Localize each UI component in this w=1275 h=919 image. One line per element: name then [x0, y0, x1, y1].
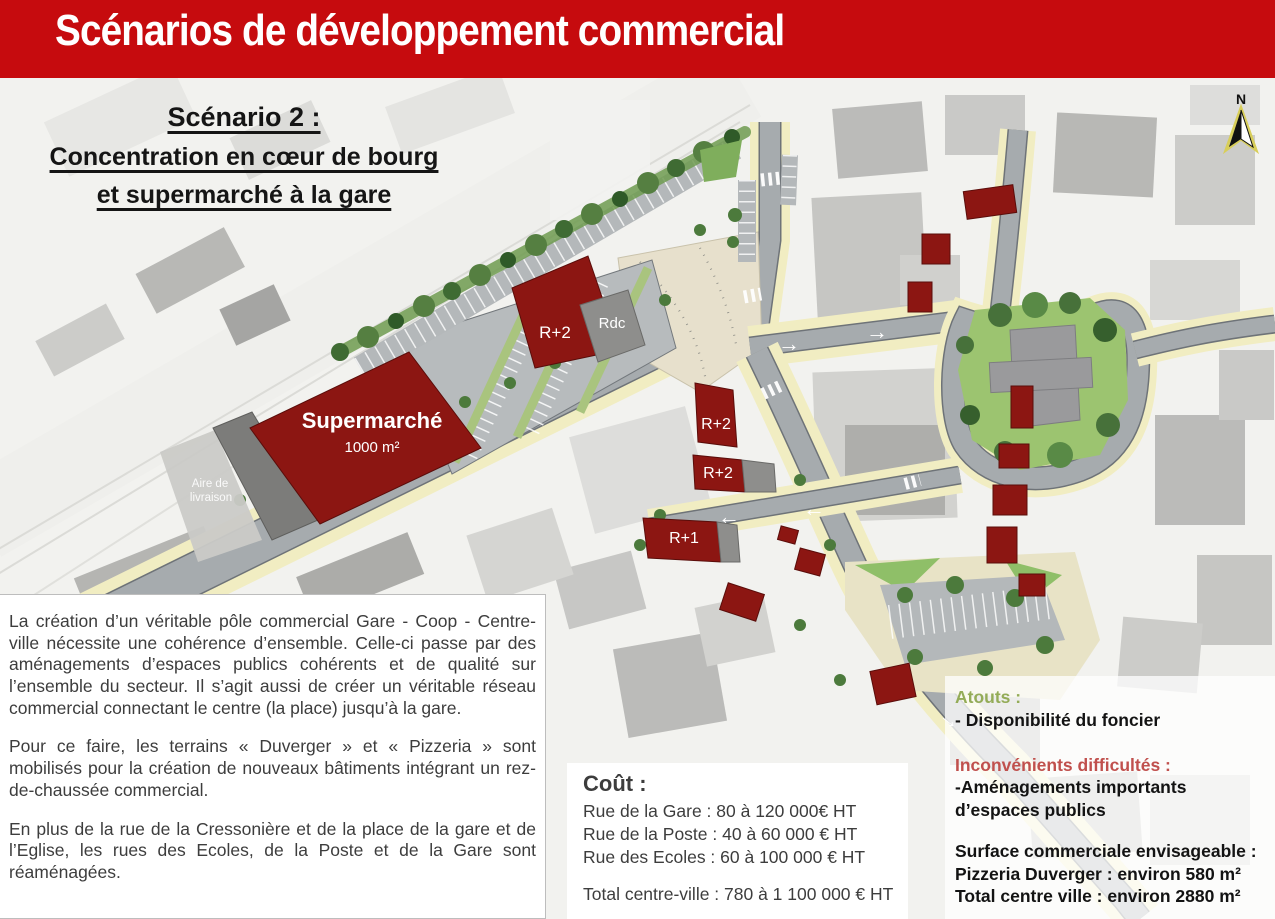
assessment-panel: Atouts : - Disponibilité du foncier Inco… [945, 676, 1275, 919]
atouts-item: - Disponibilité du foncier [955, 709, 1265, 732]
one-way-arrow-icon: ← [803, 496, 825, 521]
cost-line: Rue de la Gare : 80 à 120 000€ HT [583, 800, 908, 823]
building-label-r2: R+2 [701, 416, 731, 433]
building-label-r2: R+2 [703, 465, 733, 482]
title-banner: Scénarios de développement commercial [0, 0, 1275, 78]
description-paragraph-3: En plus de la rue de la Cressonière et d… [9, 819, 536, 884]
description-box: La création d’un véritable pôle commerci… [0, 594, 546, 919]
slide: → → ← ← → Supermarché 1000 m² Aire de li… [0, 0, 1275, 919]
cost-line: Rue des Ecoles : 60 à 100 000 € HT [583, 846, 908, 869]
surface-title: Surface commerciale envisageable : [955, 840, 1265, 863]
cost-title: Coût : [583, 771, 908, 797]
inconvenients-title: Inconvénients difficultés : [955, 754, 1265, 777]
north-label: N [1236, 91, 1246, 107]
church-square [956, 292, 1128, 470]
delivery-area-label: Aire de [192, 478, 228, 490]
delivery-area-label: livraison [190, 492, 232, 504]
atouts-title: Atouts : [955, 686, 1265, 709]
scenario-number: Scénario 2 : [18, 102, 470, 133]
scenario-subtitle: Scénario 2 : Concentration en cœur de bo… [18, 102, 470, 219]
building-label-r2: R+2 [539, 323, 571, 342]
one-way-arrow-icon: ← [718, 504, 740, 529]
cost-line: Rue de la Poste : 40 à 60 000 € HT [583, 823, 908, 846]
surface-line-pizzeria: Pizzeria Duverger : environ 580 m² [955, 863, 1265, 886]
cost-total: Total centre-ville : 780 à 1 100 000 € H… [583, 884, 908, 905]
building-label-r1: R+1 [669, 530, 699, 547]
inconvenients-item: -Aménagements importants d’espaces publi… [955, 776, 1265, 822]
scenario-title-line2: Concentration en cœur de bourg [18, 143, 470, 172]
one-way-arrow-icon: → [866, 319, 888, 344]
description-paragraph-1: La création d’un véritable pôle commerci… [9, 611, 536, 719]
description-paragraph-2: Pour ce faire, les terrains « Duverger »… [9, 736, 536, 801]
page-title: Scénarios de développement commercial [0, 0, 1275, 56]
one-way-arrow-icon: → [778, 331, 800, 356]
scenario-title-line3: et supermarché à la gare [18, 181, 470, 210]
building-label-rdc: Rdc [599, 315, 626, 332]
cost-box: Coût : Rue de la Gare : 80 à 120 000€ HT… [567, 763, 908, 919]
building-r2-b [695, 383, 737, 447]
supermarket-area-label: 1000 m² [344, 439, 399, 456]
supermarket-label: Supermarché [302, 408, 443, 433]
surface-line-total: Total centre ville : environ 2880 m² [955, 885, 1265, 908]
